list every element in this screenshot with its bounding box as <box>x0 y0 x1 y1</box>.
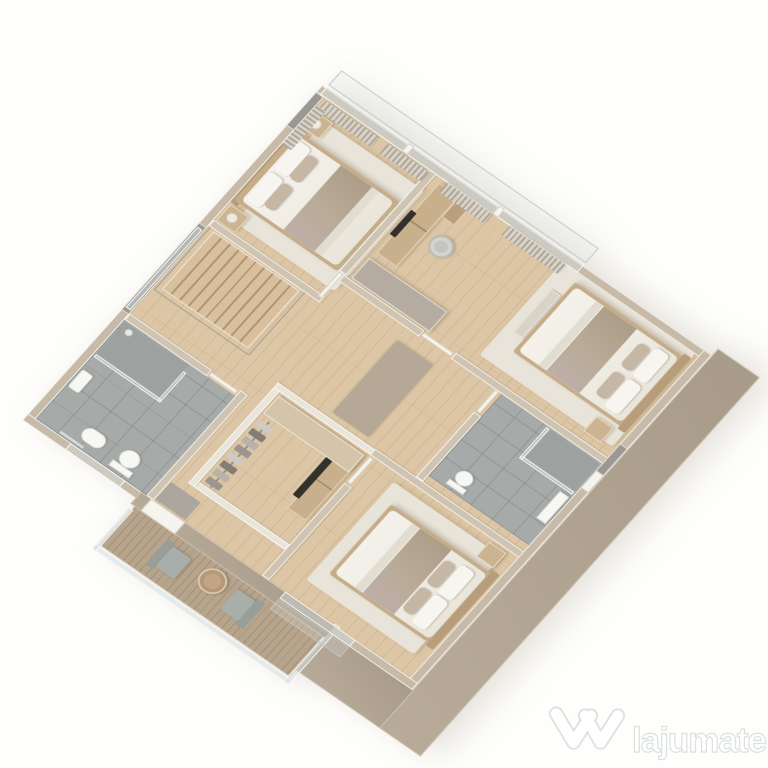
floor-plan-render: lajumate.ro <box>0 0 768 768</box>
w-chevron-logo-icon <box>548 704 626 758</box>
watermark: lajumate.ro <box>548 704 768 758</box>
isometric-plan <box>22 85 712 690</box>
watermark-brand: lajumate <box>632 723 766 758</box>
